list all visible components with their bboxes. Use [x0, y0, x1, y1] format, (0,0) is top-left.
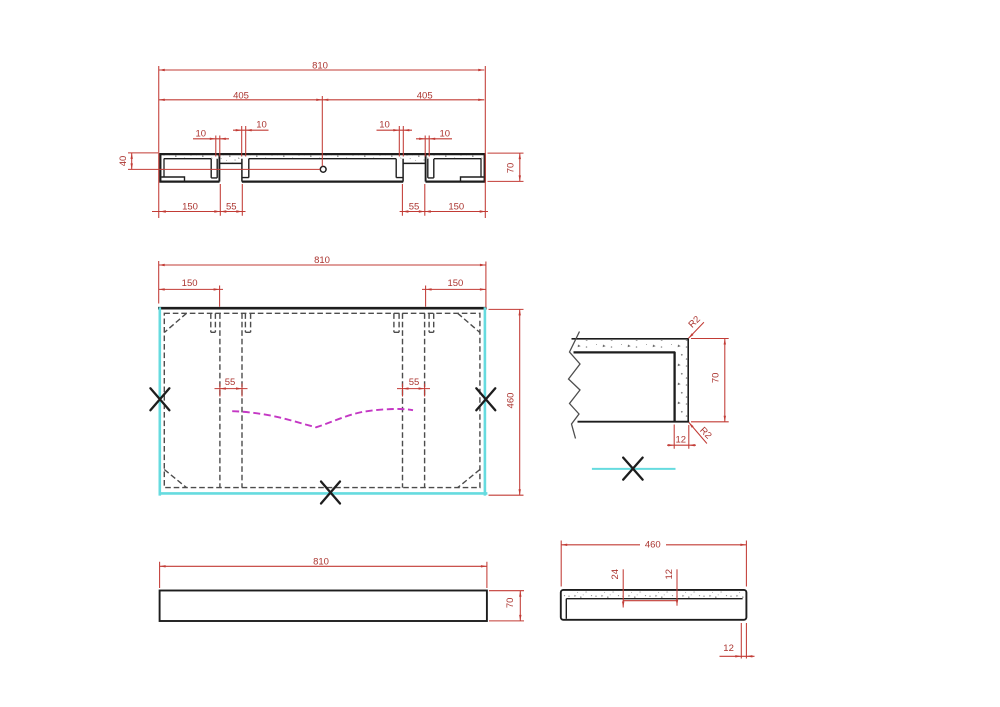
svg-text:55: 55: [409, 201, 420, 212]
svg-text:10: 10: [256, 119, 267, 130]
svg-text:810: 810: [314, 255, 330, 266]
svg-text:150: 150: [447, 278, 463, 289]
svg-text:55: 55: [409, 377, 420, 388]
svg-text:810: 810: [313, 556, 329, 567]
svg-text:12: 12: [723, 643, 734, 654]
svg-text:405: 405: [417, 90, 433, 101]
svg-text:460: 460: [645, 539, 661, 550]
svg-text:10: 10: [196, 129, 207, 140]
svg-text:70: 70: [505, 163, 516, 174]
svg-text:810: 810: [312, 61, 328, 72]
svg-text:12: 12: [676, 434, 687, 445]
svg-text:460: 460: [505, 393, 516, 409]
svg-text:24: 24: [610, 569, 621, 580]
svg-text:70: 70: [505, 598, 516, 609]
svg-text:12: 12: [664, 569, 675, 580]
svg-text:40: 40: [118, 156, 129, 167]
svg-text:10: 10: [379, 119, 390, 130]
svg-text:150: 150: [448, 201, 464, 212]
svg-text:70: 70: [710, 373, 721, 384]
svg-text:405: 405: [233, 90, 249, 101]
svg-text:55: 55: [226, 201, 237, 212]
svg-text:55: 55: [225, 377, 236, 388]
svg-text:10: 10: [440, 129, 451, 140]
svg-text:150: 150: [182, 278, 198, 289]
svg-text:150: 150: [182, 201, 198, 212]
